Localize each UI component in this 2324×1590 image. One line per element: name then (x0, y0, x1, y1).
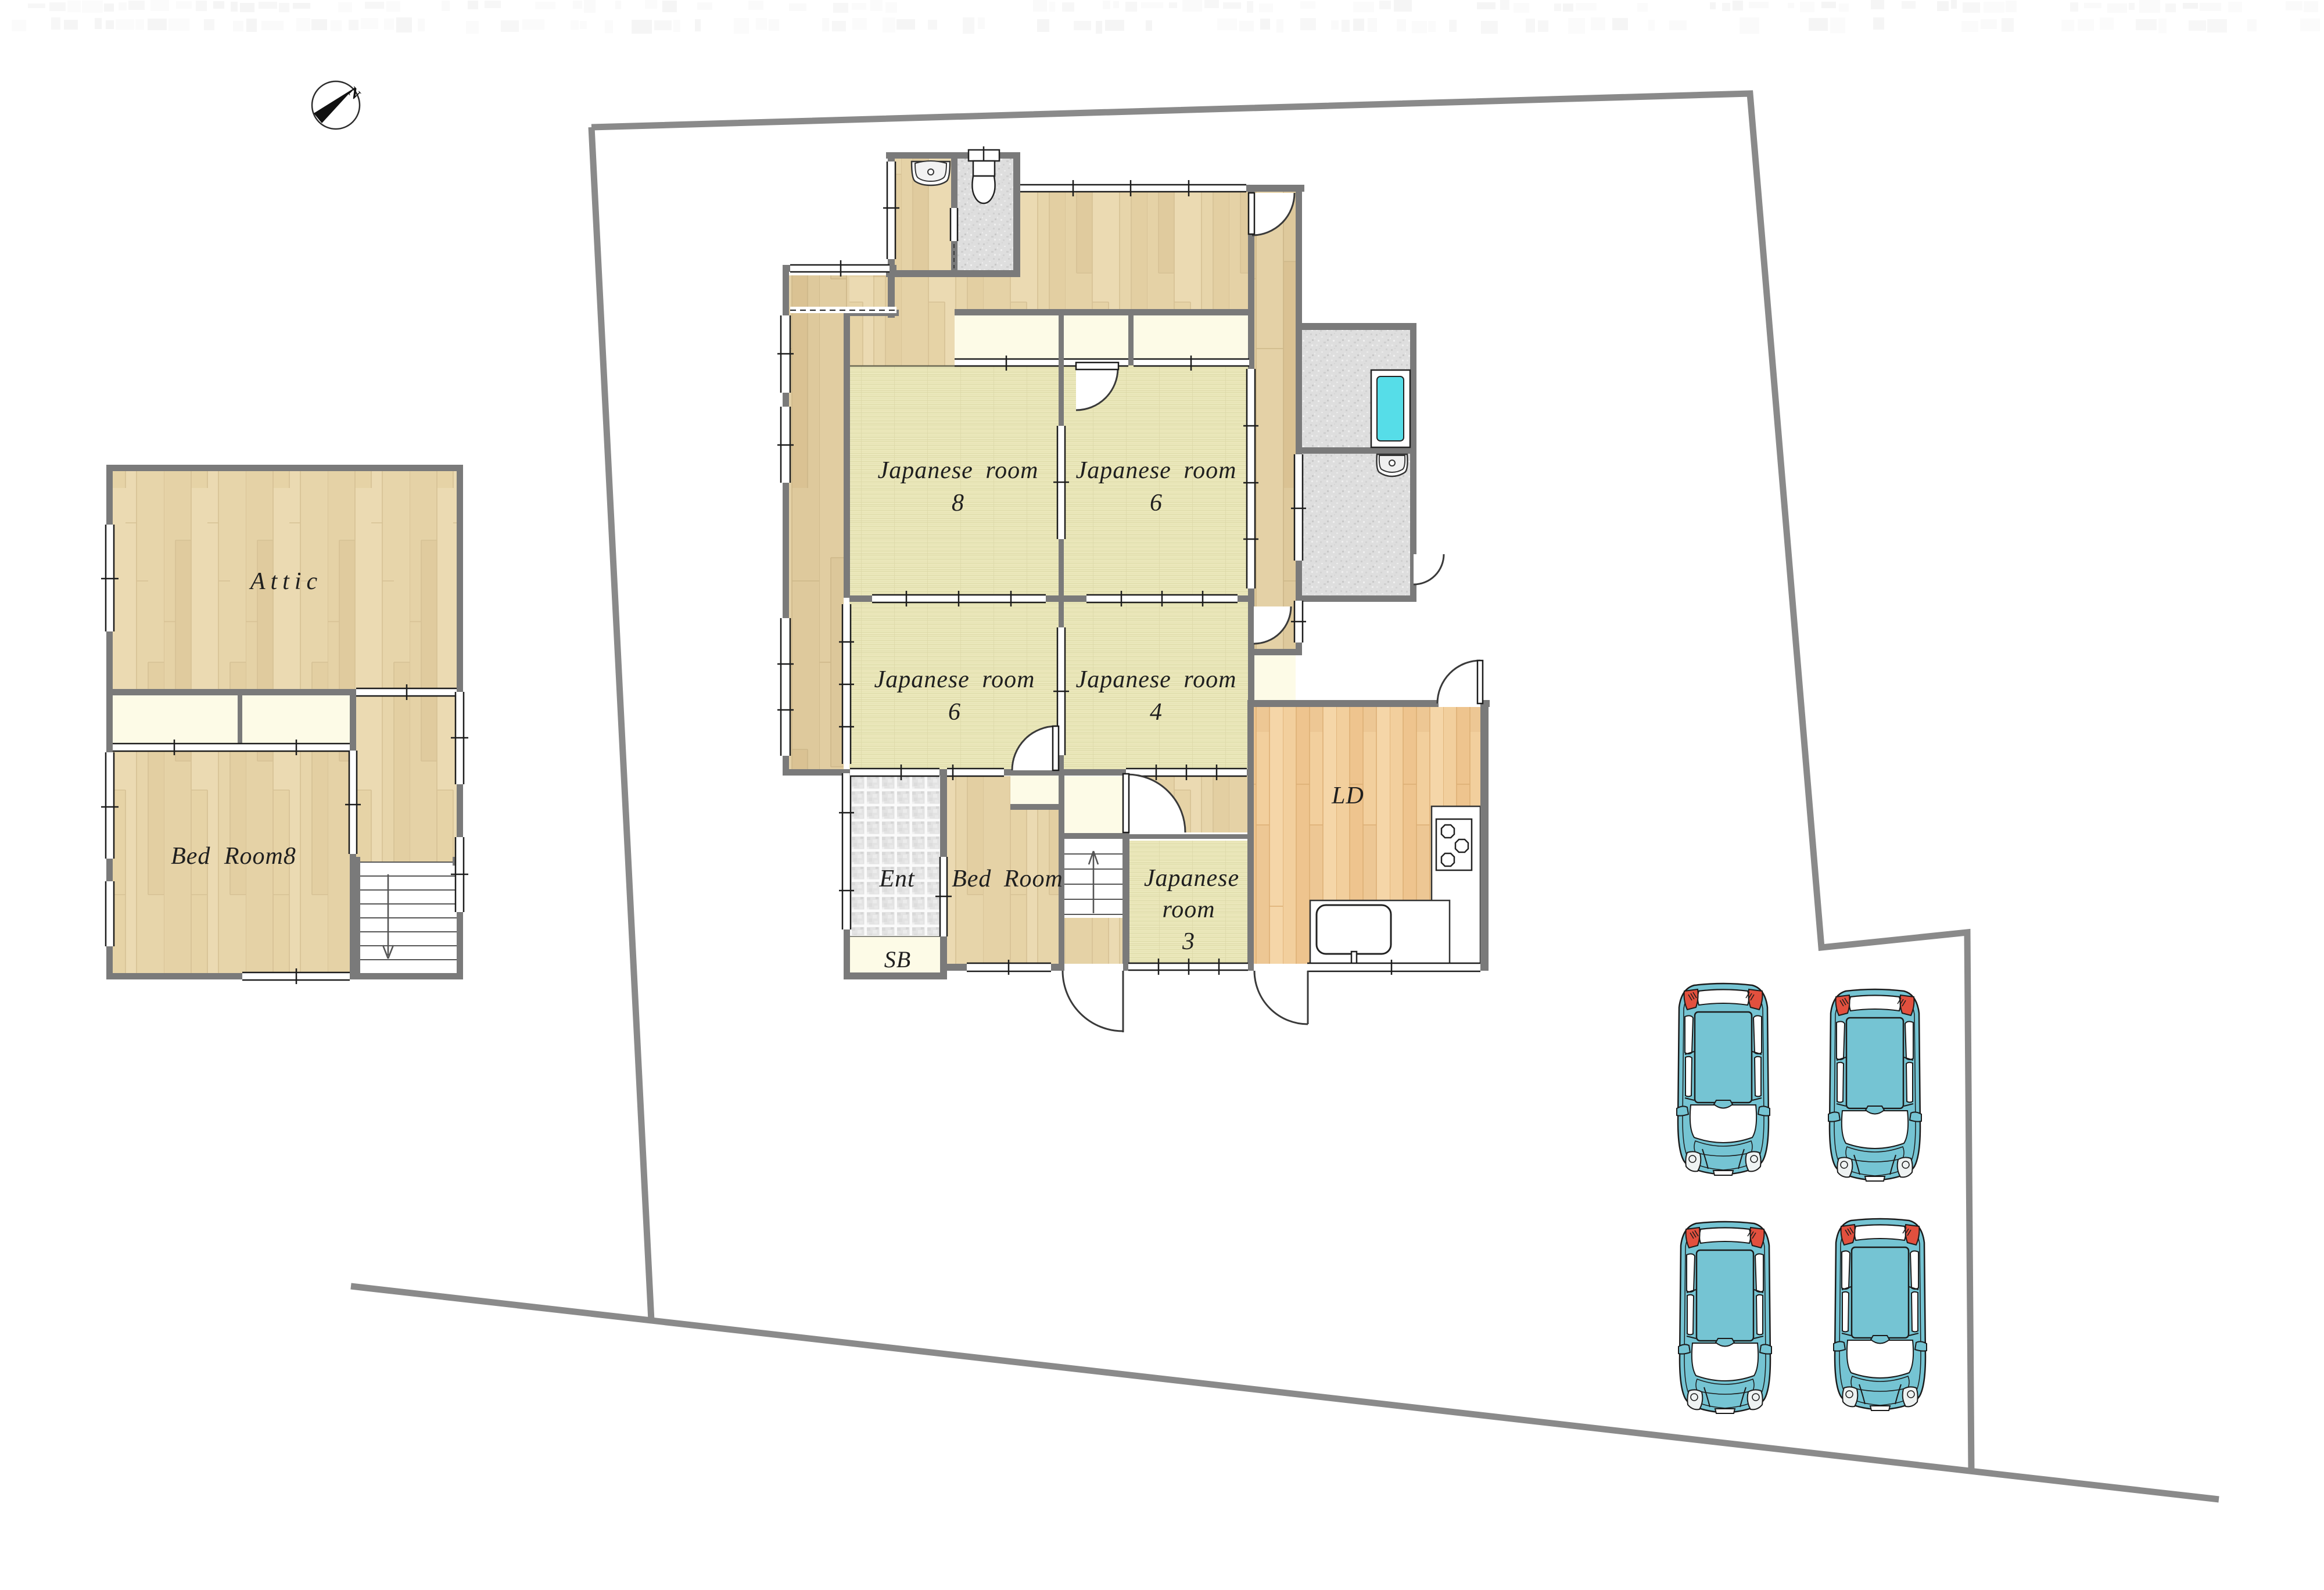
svg-text:Japanese: Japanese (1144, 865, 1239, 892)
svg-text:6: 6 (1150, 490, 1163, 516)
svg-text:LD: LD (1331, 783, 1364, 809)
svg-text:room: room (1162, 896, 1215, 923)
svg-text:Japanese room: Japanese room (1076, 457, 1237, 484)
svg-text:Japanese room: Japanese room (874, 666, 1035, 693)
svg-text:Ent: Ent (878, 866, 915, 892)
svg-text:6: 6 (948, 699, 961, 726)
svg-text:SB: SB (884, 946, 911, 972)
svg-text:Japanese room: Japanese room (878, 457, 1039, 484)
svg-text:Bed Room8: Bed Room8 (171, 843, 296, 870)
svg-text:8: 8 (952, 490, 964, 516)
svg-text:Attic: Attic (249, 568, 322, 595)
svg-text:3: 3 (1182, 928, 1195, 955)
svg-text:Bed Room: Bed Room (952, 866, 1063, 892)
svg-text:4: 4 (1150, 699, 1163, 726)
svg-text:Japanese room: Japanese room (1076, 666, 1237, 693)
